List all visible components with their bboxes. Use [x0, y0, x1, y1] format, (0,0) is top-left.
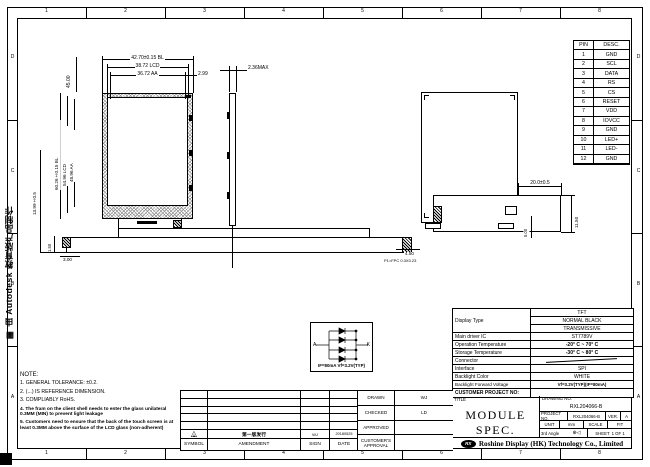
angle-label: 3rd Angle	[540, 429, 566, 437]
empty-cell	[330, 414, 358, 422]
dim-label: 38.72 LCD	[107, 64, 188, 69]
pin-number: 2	[574, 60, 594, 69]
pin-desc: SCL	[594, 60, 629, 69]
pin-desc: GND	[594, 126, 629, 135]
spec-label: Main driver IC	[453, 333, 531, 341]
fpc-left-stiffener	[62, 237, 71, 248]
empty-cell	[301, 407, 330, 415]
dim-label: 42.70±0.15 BL	[102, 56, 193, 61]
zone-label: 6	[402, 9, 481, 14]
pin-desc: GND	[594, 155, 629, 164]
spec-value: ST7789V	[531, 333, 633, 341]
desc-col-header: DESC.	[594, 41, 629, 50]
dim-label: 13.99±0.5	[32, 165, 39, 215]
drawing-no-value: RXL204066-B	[540, 404, 632, 410]
pin-number: 12	[574, 155, 594, 164]
unit-scale-row: UNIT mm SCALE FIT	[540, 421, 632, 429]
dim-label: 36.72 AA	[110, 72, 185, 77]
spec-value: Vf=3.2V(TYP)(IF=80mA)	[531, 381, 633, 389]
pin-number: 10	[574, 136, 594, 145]
dim-label: 11.50	[574, 200, 581, 228]
autodesk-watermark: ▦ 由 Autodesk 教育版产品制作	[3, 140, 15, 340]
amend-col-header: AMENDMENT	[208, 439, 301, 450]
empty-cell	[181, 407, 208, 415]
spec-value: TFT	[531, 309, 633, 317]
project-no-value: RXL204066-B	[568, 412, 606, 420]
spec-value: -30° C ~ 80° C	[531, 349, 633, 357]
back-foot	[498, 223, 514, 229]
zone-label: 2	[86, 9, 165, 14]
checked-value: LD	[395, 406, 453, 421]
sheet-cell: SHEET 1 OF 1	[588, 429, 632, 437]
backlight-circuit: A K IF=80mA Vf=3.2V(TYP)	[310, 322, 373, 372]
pin-number: 8	[574, 117, 594, 126]
pin-number: 6	[574, 98, 594, 107]
pin-desc: CS	[594, 88, 629, 97]
back-foot	[425, 223, 441, 229]
dim-label: 1.50	[47, 234, 53, 252]
zone-label: 4	[244, 9, 323, 14]
empty-cell	[301, 414, 330, 422]
angle-sheet-row: 3rd Angle ⊕◁ SHEET 1 OF 1	[540, 429, 632, 437]
pin-number: 3	[574, 69, 594, 78]
side-profile	[229, 93, 236, 226]
spec-label: Backlight Forward Voltage	[453, 381, 531, 389]
customer-approval-label: CUSTOMER'S APPROVAL	[358, 435, 395, 450]
customer-approval-value	[395, 435, 453, 450]
pin-col-header: PIN	[574, 41, 594, 50]
spec-label: Interface	[453, 365, 531, 373]
revision-symbol-cell: △ A	[181, 430, 208, 440]
dim-label: 48.96 AA	[69, 130, 76, 182]
amend-col-header: SIGN	[301, 439, 330, 450]
pin-desc: LED+	[594, 136, 629, 145]
spec-value: WHITE	[531, 373, 633, 381]
contact-mark	[189, 150, 192, 156]
corner-notch	[424, 213, 429, 218]
empty-cell	[330, 422, 358, 430]
drawing-no-label: DRAWING NO.	[542, 397, 572, 402]
zone-label: A	[634, 395, 643, 400]
note-line: 2. (...) IS REFERENCE DIMENSION.	[20, 390, 175, 396]
dim-label: 54.96 LCD	[62, 126, 69, 186]
empty-cell	[330, 407, 358, 415]
corner-mark	[0, 453, 12, 465]
empty-cell	[208, 391, 301, 399]
side-bump	[227, 192, 230, 199]
company-name: Roshine Display (HK) Technology Co., Lim…	[479, 440, 623, 448]
back-component	[505, 206, 517, 215]
empty-cell	[181, 391, 208, 399]
zone-label: 5	[323, 9, 402, 14]
zone-label: 7	[481, 451, 560, 456]
approval-table: DRAWN WJ CHECKED LD APPROVED CUSTOMER'S …	[357, 390, 453, 451]
revision-text: 第一版发行	[208, 430, 301, 440]
version-value: A	[621, 412, 632, 420]
pin-desc: RS	[594, 79, 629, 88]
spec-value: NORMAL BLACK	[531, 317, 633, 325]
revision-symbol: A	[193, 434, 195, 438]
pin-number: 9	[574, 126, 594, 135]
corner-notch	[424, 95, 429, 100]
zone-label: 1	[7, 9, 86, 14]
note-line: 4. The fram on the client shell needs to…	[20, 407, 175, 418]
spec-label: Display Type	[453, 309, 531, 333]
empty-cell	[330, 399, 358, 407]
sheet-value: 1 OF 1	[612, 431, 625, 436]
scale-label: SCALE	[584, 421, 608, 428]
zone-label: A	[8, 395, 17, 400]
drawn-label: DRAWN	[358, 391, 395, 406]
dim-label: 3.00	[62, 258, 73, 263]
zone-label: 8	[560, 451, 639, 456]
zone-label: 4	[244, 451, 323, 456]
revision-date: 20180525	[330, 430, 358, 440]
pin-desc: DATA	[594, 69, 629, 78]
empty-cell	[181, 399, 208, 407]
drawn-value: WJ	[395, 391, 453, 406]
approved-value	[395, 421, 453, 436]
pin-table: PIN DESC. 1GND 2SCL 3DATA 4RS 5CS 6RESET…	[573, 40, 630, 165]
approved-label: APPROVED	[358, 421, 395, 436]
circuit-spec-label: IF=80mA Vf=3.2V(TYP)	[311, 364, 372, 369]
version-label: VER.	[606, 412, 621, 420]
drawing-no-cell: DRAWING NO. RXL204066-B	[540, 396, 632, 412]
empty-cell	[301, 422, 330, 430]
title-label: TITLE	[454, 398, 466, 403]
dim-label: 5.00	[523, 219, 529, 237]
spec-label: Connector	[453, 357, 531, 365]
amend-col-header: SYMBOL	[181, 439, 208, 450]
spec-value: -20° C ~ 70° C	[531, 341, 633, 349]
document-title: MODULE SPEC.	[452, 408, 539, 438]
dim-label: 20.0±0.5	[518, 181, 562, 186]
dim-label: 60.26±0.15 BL	[54, 120, 61, 190]
spec-label: Operation Temperature	[453, 341, 531, 349]
empty-cell	[181, 414, 208, 422]
pin-desc: IOVCC	[594, 117, 629, 126]
empty-cell	[301, 391, 330, 399]
spec-value	[531, 357, 633, 365]
autodesk-logo-icon: ▦	[4, 330, 14, 341]
fpc-note-label: P1=FPC 0.3X0.23	[384, 259, 416, 263]
unit-value: mm	[560, 421, 584, 428]
empty-cell	[208, 422, 301, 430]
pin-number: 4	[574, 79, 594, 88]
third-angle-icon: ⊕◁	[566, 429, 588, 437]
sheet-label: SHEET	[595, 431, 609, 436]
empty-cell	[330, 391, 358, 399]
company-band: RX Roshine Display (HK) Technology Co., …	[452, 437, 632, 449]
dim-label: 2.99	[197, 72, 209, 77]
fpc-component	[173, 220, 182, 228]
pin-desc: VDD	[594, 107, 629, 116]
note-line: 1. GENERAL TOLERANCE: ±0.2.	[20, 381, 175, 387]
front-active-area	[107, 97, 188, 206]
empty-cell	[301, 399, 330, 407]
spec-label: Storage Temperature	[453, 349, 531, 357]
spec-value: SPI	[531, 365, 633, 373]
zone-label: D	[8, 55, 17, 60]
anode-label: A	[313, 343, 316, 348]
revision-sign: WJ	[301, 430, 330, 440]
zone-label: 7	[481, 9, 560, 14]
zone-label: 3	[165, 9, 244, 14]
fpc-contact-bar	[137, 221, 157, 224]
side-bump	[227, 152, 230, 159]
note-line: 3. COMPLIABLY RoHS.	[20, 398, 175, 404]
zone-label: 5	[323, 451, 402, 456]
dim-label: 4.50	[404, 252, 415, 257]
project-no-label: PROJECT NO.	[540, 412, 568, 420]
project-no-row: PROJECT NO. RXL204066-B VER. A	[540, 412, 632, 421]
zone-label: 6	[402, 451, 481, 456]
notes-heading: NOTE:	[20, 372, 175, 379]
back-connector	[433, 206, 442, 223]
unit-label: UNIT	[540, 421, 560, 428]
note-line: 5. Customers need to ensure that the bac…	[20, 420, 175, 431]
pin-desc: RESET	[594, 98, 629, 107]
corner-notch	[510, 95, 515, 100]
cathode-label: K	[367, 343, 370, 348]
zone-label: 2	[86, 451, 165, 456]
empty-cell	[208, 407, 301, 415]
scale-value: FIT	[608, 421, 632, 428]
spec-value: TRANSMISSIVE	[531, 325, 633, 333]
company-logo-icon: RX	[461, 440, 476, 448]
side-fpc-line	[232, 226, 233, 268]
zone-label: 3	[165, 451, 244, 456]
checked-label: CHECKED	[358, 406, 395, 421]
contact-mark	[189, 115, 192, 121]
zone-label: 1	[7, 451, 86, 456]
watermark-text: 由 Autodesk 教育版产品制作	[4, 206, 14, 326]
spec-table: Display Type TFT NORMAL BLACK TRANSMISSI…	[452, 308, 634, 398]
amend-col-header: DATE	[330, 439, 358, 450]
zone-label: D	[634, 55, 643, 60]
spec-label: Backlight Color	[453, 373, 531, 381]
zone-label: B	[634, 282, 643, 287]
pin-desc: LED-	[594, 145, 629, 154]
empty-cell	[208, 399, 301, 407]
empty-cell	[181, 422, 208, 430]
pin-number: 11	[574, 145, 594, 154]
empty-cell	[208, 414, 301, 422]
pin-number: 5	[574, 88, 594, 97]
strike-line	[546, 358, 617, 362]
amendment-table: △ A 第一版发行 WJ 20180525 SYMBOL AMENDMENT S…	[180, 390, 359, 451]
pin-number: 7	[574, 107, 594, 116]
drawing-sheet: 1 2 3 4 5 6 7 8 1 2 3 4 5 6 7 8 D C B A …	[0, 0, 650, 467]
pin-desc: GND	[594, 50, 629, 59]
side-bump	[227, 112, 230, 119]
title-cell: TITLE MODULE SPEC.	[452, 396, 540, 437]
dim-label: 45.00	[66, 58, 73, 88]
zone-label: C	[634, 169, 643, 174]
notes-block: NOTE: 1. GENERAL TOLERANCE: ±0.2. 2. (..…	[20, 372, 175, 434]
dim-label: 2.36MAX	[247, 66, 270, 71]
fpc-band-lower	[66, 237, 412, 253]
pin-number: 1	[574, 50, 594, 59]
back-fpc-fold	[433, 195, 561, 232]
zone-label: 8	[560, 9, 639, 14]
contact-mark	[189, 185, 192, 191]
